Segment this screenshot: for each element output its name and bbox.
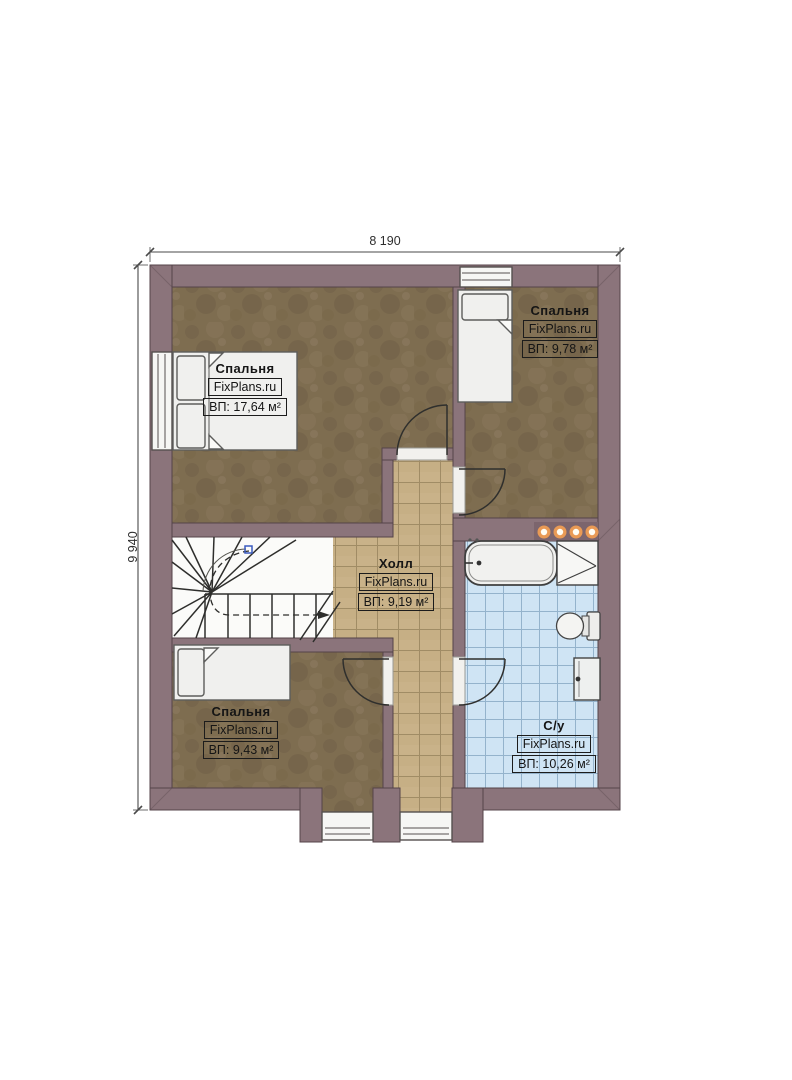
bathtub-drain-icon: [477, 561, 482, 566]
room-name: Холл: [379, 556, 413, 571]
door-opening-bedroom2: [453, 467, 465, 513]
room-watermark: FixPlans.ru: [359, 573, 434, 591]
room-watermark: FixPlans.ru: [523, 320, 598, 338]
room-label-bedroom-bottom-left: Спальня FixPlans.ru ВП: 9,43 м²: [197, 704, 285, 759]
room-label-bathroom: С/у FixPlans.ru ВП: 10,26 м²: [508, 718, 600, 773]
washbasin: [574, 658, 600, 700]
room-watermark: FixPlans.ru: [517, 735, 592, 753]
wall-left: [150, 265, 172, 810]
dimension-height-label: 9 940: [126, 507, 140, 587]
room-area: ВП: 17,64 м²: [203, 398, 287, 416]
door-opening-bedroom1: [397, 448, 447, 460]
room-label-hall: Холл FixPlans.ru ВП: 9,19 м²: [354, 556, 438, 611]
spotlight-strip: [534, 522, 599, 541]
floor-plan-drawing: [0, 0, 792, 1080]
wall-top: [150, 265, 620, 287]
door-opening-bedroom3: [383, 657, 393, 705]
wall-alcove-pier-left: [300, 788, 322, 842]
bed-single-top-right: [458, 290, 512, 402]
floor-plan-canvas: 8 190 9 940 Спальня FixPlans.ru ВП: 17,6…: [0, 0, 792, 1080]
wall-bedroom3-right-a: [383, 652, 393, 657]
room-area: ВП: 10,26 м²: [512, 755, 596, 773]
room-name: Спальня: [216, 361, 275, 376]
bathtub: [465, 538, 557, 585]
floor-hall-alcove: [400, 788, 452, 814]
wall-bottom-right: [483, 788, 620, 810]
room-name: Спальня: [531, 303, 590, 318]
door-opening-bathroom: [453, 657, 465, 705]
toilet: [557, 612, 601, 640]
wall-corridor-top-a: [382, 448, 397, 460]
wall-bottom-left: [150, 788, 300, 810]
floor-bedroom-alcove: [322, 788, 373, 814]
room-label-bedroom-top-left: Спальня FixPlans.ru ВП: 17,64 м²: [197, 361, 293, 416]
room-watermark: FixPlans.ru: [208, 378, 283, 396]
room-area: ВП: 9,43 м²: [203, 741, 280, 759]
wall-corridor-top-b: [447, 448, 453, 460]
wall-alcove-pier-right: [452, 788, 483, 842]
wall-bedroom1-bottom: [172, 523, 393, 537]
room-label-bedroom-top-right: Спальня FixPlans.ru ВП: 9,78 м²: [516, 303, 604, 358]
window-top-wall: [460, 267, 512, 287]
shower-counter: [557, 541, 598, 585]
wall-bedroom3-right-b: [383, 705, 393, 788]
room-name: Спальня: [212, 704, 271, 719]
window-alcove-left: [322, 812, 373, 840]
dimension-width-label: 8 190: [345, 234, 425, 248]
wall-center-vertical-c: [453, 705, 465, 788]
room-area: ВП: 9,19 м²: [358, 593, 435, 611]
window-left-wall: [152, 352, 172, 450]
bed-single-bottom-left: [174, 645, 290, 700]
room-watermark: FixPlans.ru: [204, 721, 279, 739]
window-alcove-right: [400, 812, 452, 840]
room-name: С/у: [543, 718, 564, 733]
wall-alcove-pier-mid: [373, 788, 400, 842]
room-area: ВП: 9,78 м²: [522, 340, 599, 358]
